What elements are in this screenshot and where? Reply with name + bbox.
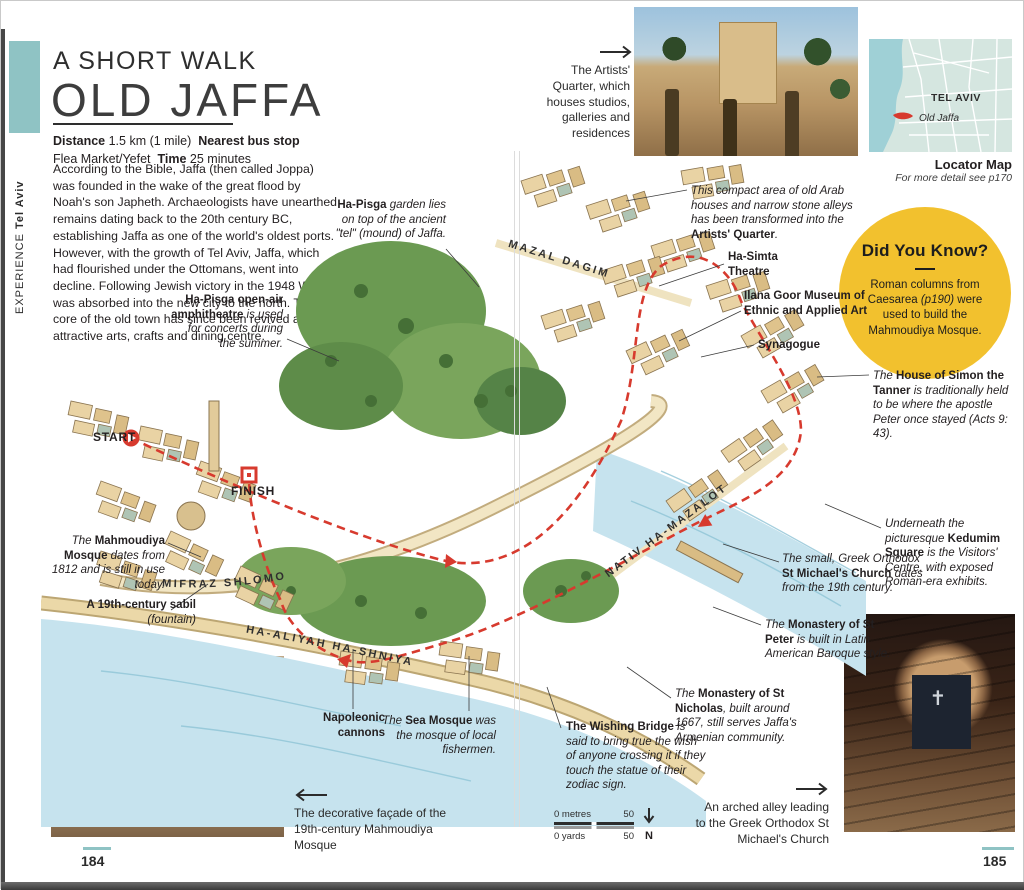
section-vertical-label: EXPERIENCE Tel Aviv — [14, 139, 26, 314]
scale-yards-label: 0 yards — [554, 831, 585, 842]
ann-bold: Napoleonic cannons — [323, 712, 385, 739]
annotation-sabil: A 19th-century sabil (fountain) — [84, 598, 196, 627]
ann-pre: The — [873, 370, 896, 382]
ann-bold: Ilana Goor Museum of Ethnic and Applied … — [744, 290, 867, 317]
finish-marker — [242, 468, 256, 482]
artists-quarter-photo-caption: The Artists' Quarter, which houses studi… — [534, 63, 630, 142]
locator-region-label: TEL AVIV — [931, 92, 981, 104]
locator-subtitle: For more detail see p170 — [869, 172, 1012, 184]
left-page-number: 184 — [81, 853, 104, 869]
north-indicator: N — [641, 807, 657, 842]
ann-bold: Ha-Pisga — [337, 199, 386, 211]
ann-bold: Artists' Quarter — [691, 229, 775, 241]
title-rule — [53, 123, 233, 125]
ann-bold: Sea Mosque — [405, 715, 472, 727]
book-page: EXPERIENCE Tel Aviv A SHORT WALK OLD JAF… — [0, 0, 1024, 889]
annotation-st-michaels-church: The small, Greek Orthodox St Michael's C… — [782, 552, 924, 596]
page-left-edge — [1, 29, 5, 890]
finish-label: FINISH — [231, 484, 275, 498]
ann-bold: Synagogue — [758, 339, 820, 351]
ann-pre: The small, Greek Orthodox — [782, 553, 920, 565]
did-you-know-body: Roman columns from Caesarea (p190) were … — [859, 278, 991, 339]
annotation-sea-mosque: The Sea Mosque was the mosque of local f… — [381, 714, 496, 758]
arched-alley-caption: An arched alley leading to the Greek Ort… — [691, 800, 829, 847]
scale-bar-top — [554, 822, 634, 825]
locator-map: TEL AVIV Old Jaffa — [869, 39, 1012, 152]
scale-yards-value: 50 — [623, 831, 634, 842]
north-arrow-icon — [643, 807, 655, 825]
ann-bold: St Michael's Church — [782, 568, 891, 580]
annotation-house-of-simon: The House of Simon the Tanner is traditi… — [873, 369, 1015, 442]
annotation-ha-simta-theatre: Ha-Simta Theatre — [728, 250, 806, 279]
annotation-hapisga-garden: Ha-Pisga garden lies on top of the ancie… — [334, 198, 446, 242]
ann-pre: The — [72, 535, 95, 547]
section-color-tab — [9, 41, 40, 133]
left-page-rule — [83, 847, 111, 850]
arrow-right-icon — [599, 45, 633, 59]
ann-bold: Ha-Simta Theatre — [728, 251, 778, 278]
arrow-right-icon-2 — [795, 782, 829, 796]
dyk-page-ref: (p190) — [921, 294, 954, 306]
right-page-number: 185 — [983, 853, 1006, 869]
distance-label: Distance — [53, 134, 105, 148]
did-you-know-title: Did You Know? — [859, 241, 991, 261]
scale-metres-value: 50 — [623, 809, 634, 820]
annotation-synagogue: Synagogue — [758, 338, 848, 353]
scale-bar: 0 metres50 0 yards50 — [554, 809, 634, 842]
region-name: Tel Aviv — [14, 180, 26, 229]
ann-pre: The — [382, 715, 405, 727]
ann-pre: The — [675, 688, 698, 700]
walk-kicker: A SHORT WALK — [53, 47, 257, 76]
ann-pre: The — [765, 619, 788, 631]
ann-pre: This compact area of old Arab houses and… — [691, 185, 853, 226]
ann-post: . — [775, 229, 778, 241]
annotation-monastery-st-peter: The Monastery of St Peter is built in La… — [765, 618, 895, 662]
ann-bold: A 19th-century sabil — [87, 599, 197, 611]
mosque-dome — [177, 502, 205, 530]
scale-metres-label: 0 metres — [554, 809, 591, 820]
right-page-rule — [982, 847, 1014, 850]
street-mazal-dagim: MAZAL DAGIM — [507, 238, 611, 281]
ann-bold: The Wishing Bridge — [566, 721, 674, 733]
distance-value: 1.5 km (1 mile) — [109, 134, 192, 148]
arrow-left-icon — [294, 788, 328, 802]
did-you-know-rule — [915, 268, 935, 270]
page-title: OLD JAFFA — [51, 73, 323, 127]
annotation-wishing-bridge: The Wishing Bridge is said to bring true… — [566, 720, 708, 793]
start-label: START — [93, 430, 136, 444]
annotation-amphitheatre: Ha-Pisga open-air amphitheatre is used f… — [169, 293, 283, 351]
street-mazal-text: MAZAL DAGIM — [507, 238, 611, 281]
scale-bar-bottom — [554, 826, 634, 829]
artists-quarter-photo — [634, 7, 858, 156]
clock-tower — [209, 401, 219, 471]
annotation-napoleonic-cannons: Napoleonic cannons — [301, 711, 385, 740]
mahmoudiya-facade-caption: The decorative façade of the 19th-centur… — [294, 806, 454, 853]
locator-marker-label: Old Jaffa — [919, 113, 959, 124]
annotation-artists-quarter: This compact area of old Arab houses and… — [691, 184, 859, 242]
locator-caption: Locator Map For more detail see p170 — [869, 157, 1012, 184]
ann-post: (fountain) — [147, 614, 196, 626]
locator-title: Locator Map — [869, 157, 1012, 172]
section-name: EXPERIENCE — [14, 233, 26, 314]
annotation-ilana-goor-museum: Ilana Goor Museum of Ethnic and Applied … — [744, 289, 870, 318]
bus-label: Nearest bus stop — [198, 134, 299, 148]
annotation-mahmoudiya-mosque: The Mahmoudiya Mosque dates from 1812 an… — [47, 534, 165, 592]
north-letter: N — [641, 830, 657, 842]
